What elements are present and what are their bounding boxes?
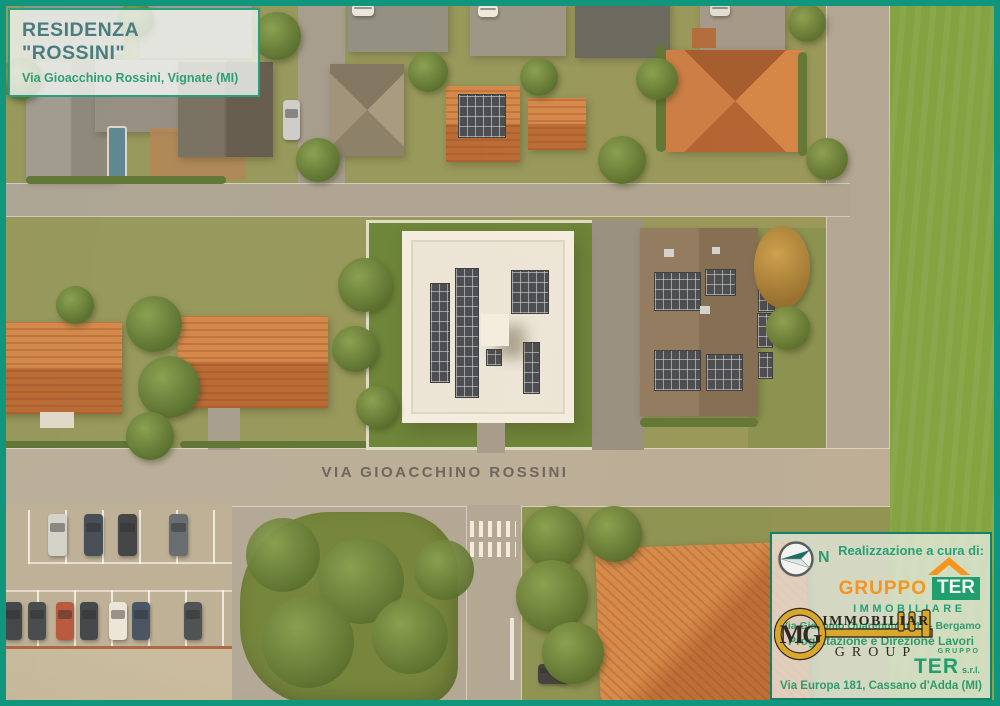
zebra-crossing — [470, 542, 516, 557]
hedge — [26, 176, 226, 184]
tree — [408, 52, 448, 92]
tree — [806, 138, 848, 180]
skylight — [700, 306, 710, 314]
mg-word-top: IMMOBILIAR — [822, 614, 930, 629]
house-roof — [528, 98, 586, 150]
tree — [598, 136, 646, 184]
tree — [338, 258, 392, 312]
solar-panel-array — [654, 350, 701, 391]
road-vertical-right — [826, 0, 890, 470]
solar-panel-array — [455, 268, 479, 398]
zebra-crossing — [470, 521, 516, 537]
tree — [356, 386, 398, 428]
project-address: Via Gioacchino Rossini, Vignate (MI) — [22, 71, 246, 85]
tree — [788, 4, 826, 42]
credits-box: Realizzazione a cura di: N GRUPPO TER IM… — [770, 532, 992, 700]
car — [710, 4, 730, 16]
house-roof — [0, 322, 122, 414]
skylight — [712, 247, 720, 254]
solar-panel-array — [430, 283, 450, 383]
tree — [262, 596, 354, 688]
shed-roof — [692, 28, 716, 48]
pavement — [592, 220, 644, 450]
car — [184, 602, 202, 640]
ter-srl-address: Via Europa 181, Cassano d'Adda (MI) — [772, 680, 990, 692]
solar-panel-array — [486, 349, 502, 366]
car — [4, 602, 22, 640]
tree — [542, 622, 604, 684]
car — [109, 602, 127, 640]
tree-autumn — [754, 226, 810, 308]
house-roof — [178, 316, 328, 408]
gruppo-ter-name-part2: TER — [932, 577, 980, 600]
tree — [296, 138, 340, 182]
key-icon: MG IMMOBILIAR GROUP — [774, 600, 956, 666]
tree — [586, 506, 642, 562]
mg-word-bottom: GROUP — [835, 645, 917, 660]
solar-panel-array — [758, 352, 773, 379]
car — [28, 602, 46, 640]
solar-panel-array — [706, 354, 743, 391]
tree — [126, 296, 182, 352]
project-title: RESIDENZA "ROSSINI" — [22, 19, 246, 65]
car — [56, 602, 74, 640]
solar-panel-array — [654, 272, 701, 311]
car — [169, 514, 188, 556]
aerial-site-plan: VIA GIOACCHINO ROSSINI RESIDENZA "ROSSIN… — [0, 0, 1000, 706]
car — [132, 602, 150, 640]
terrace — [40, 412, 74, 428]
hedge — [798, 52, 807, 156]
car — [478, 5, 498, 17]
hedge — [180, 441, 370, 448]
roof-access-structure — [481, 314, 509, 346]
tree — [138, 356, 200, 418]
tree — [126, 412, 174, 460]
car — [80, 602, 98, 640]
solar-panel-array — [705, 269, 736, 296]
tree — [522, 506, 584, 568]
tree — [56, 286, 94, 324]
north-compass-icon — [777, 540, 817, 580]
hip-roof-house — [330, 64, 404, 156]
hip-roof-house — [666, 50, 804, 152]
mg-monogram: MG — [780, 620, 823, 649]
tree — [253, 12, 301, 60]
car — [118, 514, 137, 556]
solar-panel-array — [458, 94, 506, 138]
flat-roof-building — [0, 646, 232, 706]
tree — [246, 518, 320, 592]
car — [48, 514, 67, 556]
tree — [520, 58, 558, 96]
street-name-label: VIA GIOACCHINO ROSSINI — [0, 464, 890, 481]
tree — [332, 326, 378, 372]
hedge — [640, 418, 758, 427]
compass-north-label: N — [818, 549, 830, 567]
entrance-path — [477, 423, 505, 453]
tree — [766, 306, 810, 350]
ter-srl-suffix: s.r.l. — [962, 665, 980, 675]
car — [352, 4, 374, 16]
fence — [510, 618, 514, 680]
solar-panel-array — [511, 270, 549, 314]
title-box: RESIDENZA "ROSSINI" Via Gioacchino Rossi… — [8, 8, 260, 97]
tree — [414, 540, 474, 600]
skylight — [664, 249, 674, 257]
car — [283, 100, 300, 140]
gruppo-ter-name-part1: GRUPPO — [839, 578, 927, 600]
tree — [372, 598, 448, 674]
tree — [516, 560, 588, 632]
road-horizontal-upper — [0, 183, 850, 217]
roof-icon — [926, 556, 972, 576]
tree — [636, 58, 678, 100]
solar-panel-array — [523, 342, 540, 394]
car — [84, 514, 103, 556]
